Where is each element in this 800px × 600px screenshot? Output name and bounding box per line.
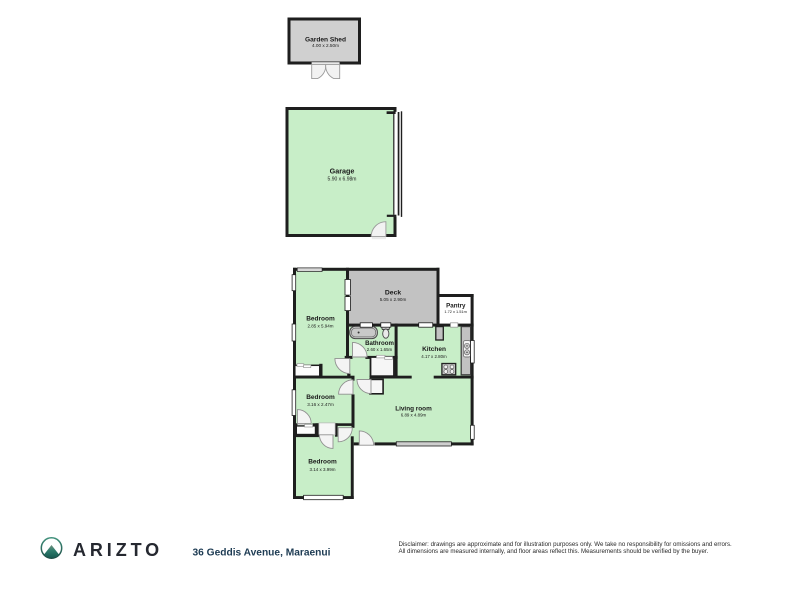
svg-text:ARIZTO: ARIZTO	[73, 540, 163, 560]
svg-text:Bathroom: Bathroom	[365, 340, 394, 347]
svg-text:2.85 x 5.94m: 2.85 x 5.94m	[307, 323, 333, 328]
svg-text:1.72 x 1.51m: 1.72 x 1.51m	[444, 309, 467, 314]
svg-text:4.17 x 2.80m: 4.17 x 2.80m	[421, 354, 447, 359]
svg-text:Bedroom: Bedroom	[306, 394, 335, 401]
svg-text:Deck: Deck	[385, 289, 401, 296]
svg-text:5.05 x 2.90m: 5.05 x 2.90m	[380, 297, 407, 302]
svg-text:4.00 x 2.50m: 4.00 x 2.50m	[312, 43, 339, 48]
svg-text:36 Geddis Avenue, Maraenui: 36 Geddis Avenue, Maraenui	[193, 548, 331, 559]
svg-text:6.89 x 4.89m: 6.89 x 4.89m	[401, 412, 427, 417]
svg-text:Bedroom: Bedroom	[306, 316, 335, 323]
svg-text:Kitchen: Kitchen	[422, 346, 446, 353]
svg-text:Garage: Garage	[330, 166, 355, 175]
svg-text:All dimensions are measured in: All dimensions are measured internally, …	[399, 548, 709, 555]
svg-text:3.16 x 2.47m: 3.16 x 2.47m	[307, 402, 334, 407]
svg-text:Bedroom: Bedroom	[308, 459, 337, 466]
svg-text:3.14 x 3.99m: 3.14 x 3.99m	[309, 467, 335, 472]
svg-text:5.90 x 6.98m: 5.90 x 6.98m	[328, 177, 357, 183]
svg-text:2.60 x 1.65m: 2.60 x 1.65m	[367, 347, 393, 352]
